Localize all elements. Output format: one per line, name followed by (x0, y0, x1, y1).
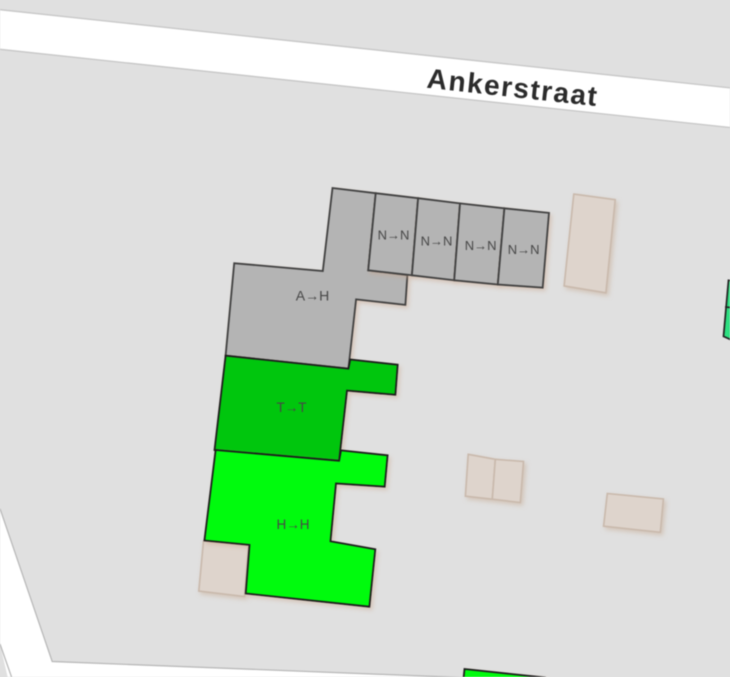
svg-text:A→H: A→H (296, 288, 329, 304)
svg-text:N→N: N→N (378, 228, 410, 243)
svg-text:N→N: N→N (465, 238, 497, 253)
svg-text:H→H: H→H (277, 517, 310, 532)
svg-text:N→N: N→N (508, 242, 540, 257)
svg-text:T→T: T→T (277, 400, 307, 415)
svg-text:N→N: N→N (421, 234, 453, 249)
